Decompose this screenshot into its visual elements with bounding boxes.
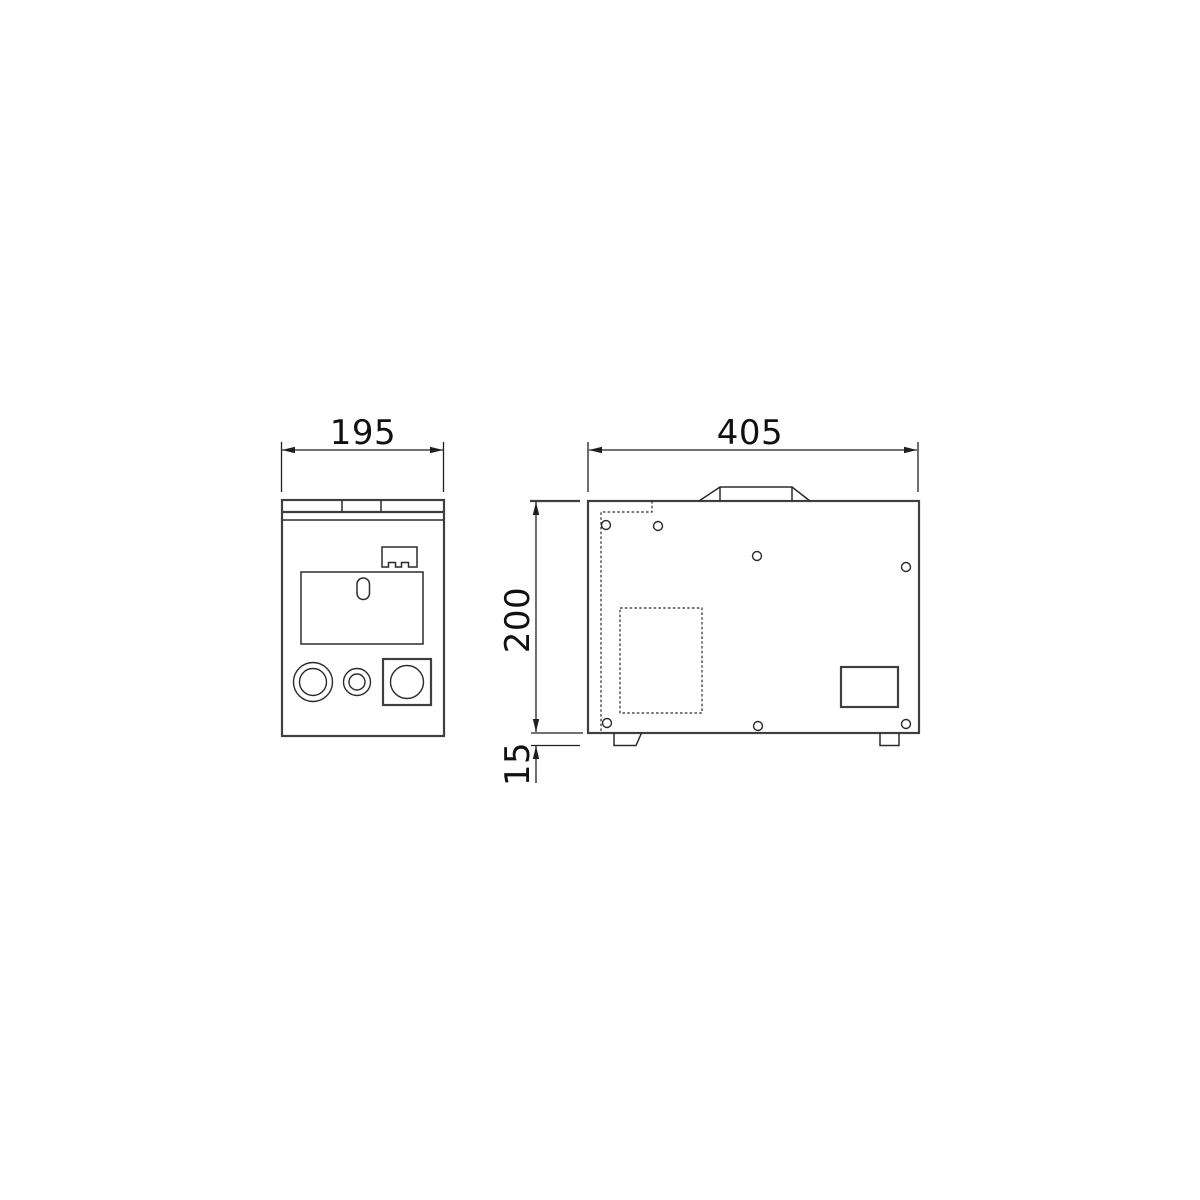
arrow-left-icon <box>282 447 295 453</box>
small-knob-inner-ring <box>349 674 365 690</box>
hidden-panel-outline <box>620 608 702 713</box>
front-view <box>282 500 444 736</box>
screw-hole <box>902 720 911 729</box>
dimension-front-width: 195 <box>282 413 444 492</box>
side-body-outline <box>588 501 919 733</box>
arrow-left-icon <box>589 447 602 453</box>
dimension-side-height: 200 <box>498 501 583 733</box>
screw-hole <box>754 722 763 731</box>
left-foot-outline <box>614 733 642 746</box>
carry-handle-outline <box>699 487 810 501</box>
dimension-value-side-width: 405 <box>717 413 783 453</box>
small-knob-outer-ring <box>344 669 371 696</box>
indicator-slot <box>357 578 370 600</box>
arrow-right-icon <box>904 447 917 453</box>
display-window-outline <box>301 572 423 644</box>
dimension-foot-height: 15 <box>498 742 580 786</box>
screw-hole <box>753 552 762 561</box>
screw-hole <box>603 719 612 728</box>
arrow-right-icon <box>430 447 443 453</box>
dimension-side-width: 405 <box>588 413 918 492</box>
arrow-up-icon <box>533 502 539 515</box>
screw-hole <box>602 521 611 530</box>
technical-drawing: 195 405 200 15 <box>0 0 1200 1200</box>
dimension-value-front-width: 195 <box>330 413 396 453</box>
drawing-canvas: 195 405 200 15 <box>0 0 1200 1200</box>
side-view <box>588 487 919 746</box>
right-foot-outline <box>880 733 899 746</box>
label-plate <box>841 667 898 707</box>
screw-hole <box>654 522 663 531</box>
connector-block-outline <box>382 547 417 567</box>
hidden-internal-edge <box>601 501 652 733</box>
dimension-value-side-height: 200 <box>498 587 538 653</box>
large-knob-inner-ring <box>300 669 327 696</box>
screw-hole <box>902 563 911 572</box>
arrow-down-icon <box>533 719 539 732</box>
button-circle <box>391 666 424 699</box>
dimension-value-foot-height: 15 <box>498 742 538 786</box>
